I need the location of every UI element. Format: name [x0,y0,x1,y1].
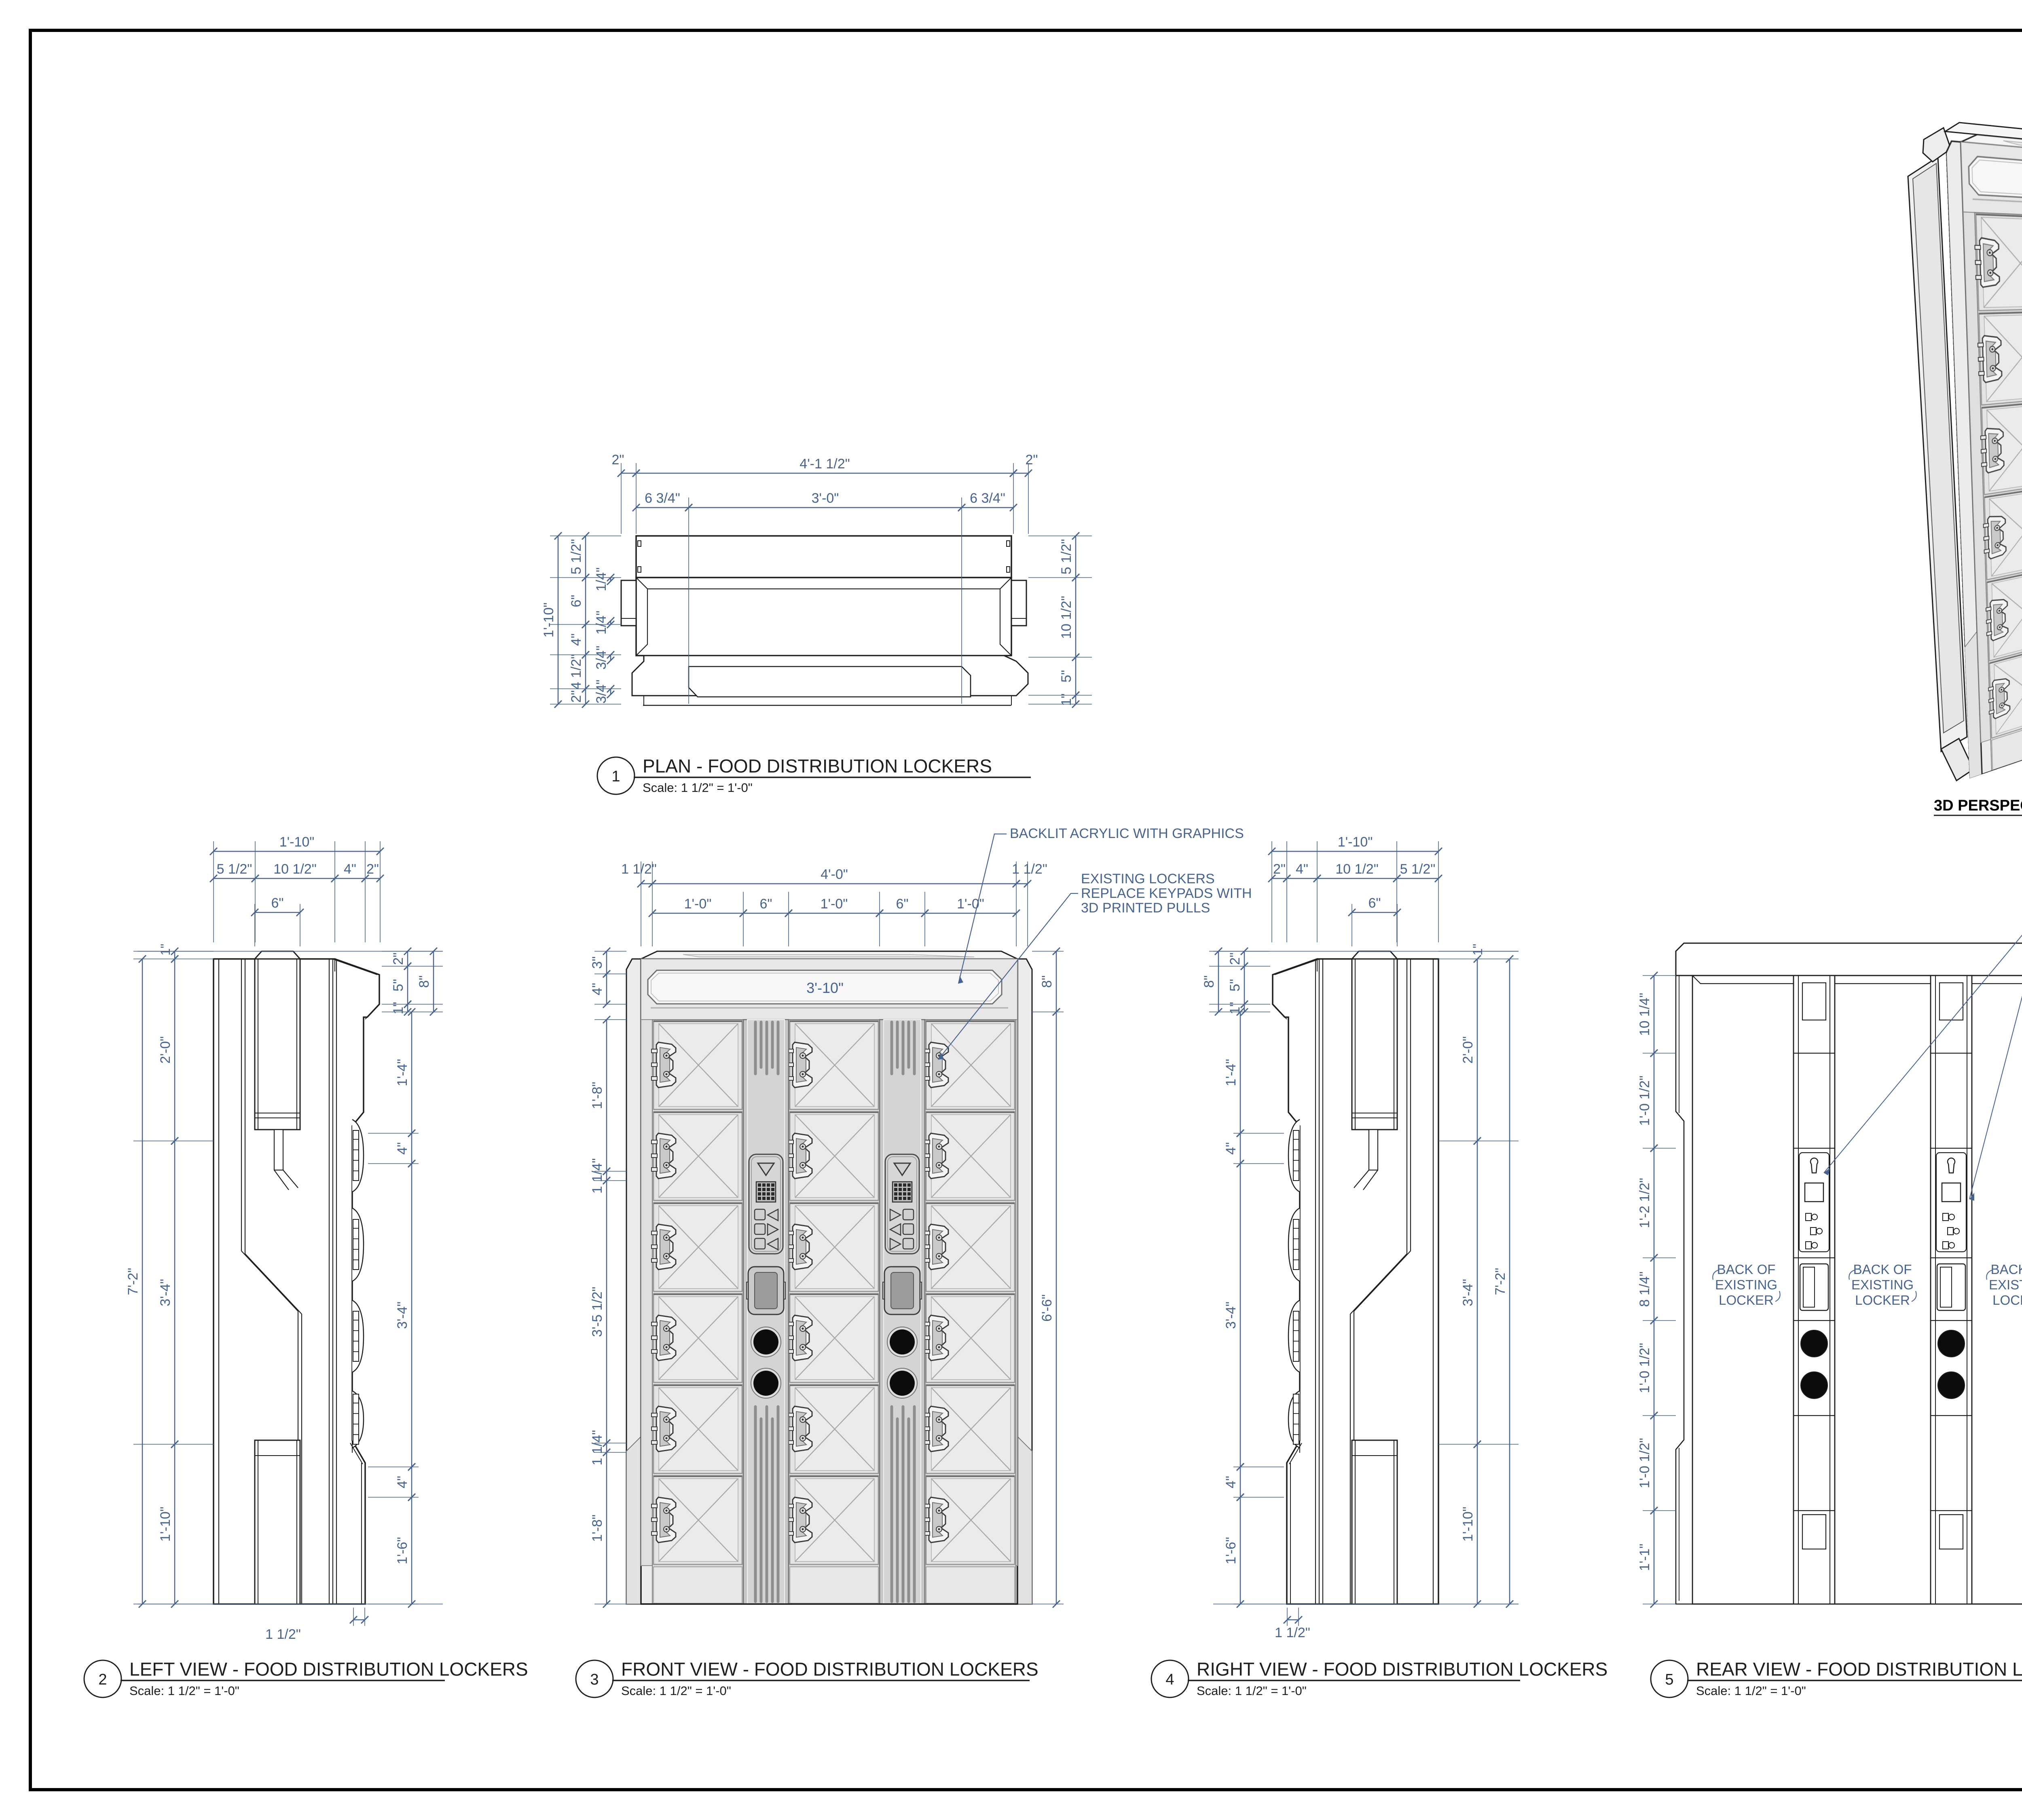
svg-text:4 1/2": 4 1/2" [569,654,584,690]
svg-text:3: 3 [590,1671,599,1688]
svg-text:3/4": 3/4" [594,645,609,669]
svg-text:3'-4": 3'-4" [158,1279,173,1306]
svg-text:1": 1" [391,1002,406,1014]
svg-text:3'-10": 3'-10" [806,980,844,996]
svg-text:1'-0 1/2": 1'-0 1/2" [1637,1343,1652,1393]
svg-text:1'-1": 1'-1" [1637,1544,1652,1571]
svg-text:1'-8": 1'-8" [590,1515,605,1542]
svg-text:1'-0": 1'-0" [821,896,848,912]
svg-text:1 1/2": 1 1/2" [1012,861,1047,877]
svg-text:1": 1" [1470,944,1485,955]
svg-text:Scale: 1 1/2" = 1'-0": Scale: 1 1/2" = 1'-0" [129,1684,239,1698]
svg-text:PLAN - FOOD DISTRIBUTION LOCKE: PLAN - FOOD DISTRIBUTION LOCKERS [643,756,992,777]
svg-text:4": 4" [569,633,584,646]
svg-text:6 3/4": 6 3/4" [645,491,680,506]
svg-text:1'-0": 1'-0" [957,896,984,912]
svg-text:10 1/2": 10 1/2" [1059,596,1074,639]
svg-text:1'-4": 1'-4" [1223,1059,1239,1086]
svg-text:Scale: 1 1/2" = 1'-0": Scale: 1 1/2" = 1'-0" [1197,1684,1307,1698]
svg-text:4": 4" [395,1142,410,1155]
svg-text:2": 2" [569,690,584,703]
svg-text:REPLACE KEYPADS WITH: REPLACE KEYPADS WITH [1081,886,1252,901]
svg-text:3D PERSPECTIVE VIEWS - N.T.S.: 3D PERSPECTIVE VIEWS - N.T.S. [1934,797,2022,814]
svg-text:3D PRINTED PULLS: 3D PRINTED PULLS [1081,900,1210,916]
svg-text:6": 6" [271,895,284,911]
svg-text:6": 6" [896,896,909,912]
svg-text:2": 2" [391,952,406,965]
svg-text:3'-0": 3'-0" [812,491,839,506]
svg-text:4": 4" [1223,1476,1239,1488]
svg-text:6'-6": 6'-6" [1039,1294,1055,1322]
svg-text:4": 4" [590,983,605,995]
svg-text:5: 5 [1665,1671,1673,1688]
svg-text:8": 8" [1201,976,1217,988]
svg-text:Scale: 1 1/2" = 1'-0": Scale: 1 1/2" = 1'-0" [621,1684,731,1698]
svg-text:1'-4": 1'-4" [395,1059,410,1086]
svg-text:1'-0": 1'-0" [684,896,712,912]
svg-text:1'-10": 1'-10" [1338,834,1373,850]
svg-text:1 1/2": 1 1/2" [265,1627,301,1642]
svg-text:3'-4": 3'-4" [1460,1279,1476,1306]
svg-text:2: 2 [98,1671,107,1688]
svg-text:1'-2 1/2": 1'-2 1/2" [1637,1178,1652,1228]
svg-text:4'-0": 4'-0" [821,867,848,882]
svg-text:1'-10": 1'-10" [279,834,315,850]
svg-text:EXISTING: EXISTING [1989,1277,2022,1292]
svg-text:5": 5" [1059,670,1074,683]
svg-text:4: 4 [1165,1671,1174,1688]
svg-text:2": 2" [1026,452,1038,468]
svg-text:LOCKER: LOCKER [1855,1293,1910,1308]
svg-text:1 1/2": 1 1/2" [621,861,657,877]
svg-text:3": 3" [590,957,605,969]
svg-text:4'-1 1/2": 4'-1 1/2" [799,456,850,472]
svg-text:1'-6": 1'-6" [1223,1537,1239,1564]
svg-text:8 1/4": 8 1/4" [1637,1272,1652,1307]
svg-text:Scale: 1 1/2" = 1'-0": Scale: 1 1/2" = 1'-0" [1696,1684,1806,1698]
svg-text:FRONT VIEW - FOOD DISTRIBUTION: FRONT VIEW - FOOD DISTRIBUTION LOCKERS [621,1659,1038,1680]
svg-text:1 1/4": 1 1/4" [590,1430,605,1466]
svg-text:2": 2" [1227,952,1243,965]
svg-text:6": 6" [760,896,772,912]
svg-text:Scale: 1 1/2" = 1'-0": Scale: 1 1/2" = 1'-0" [643,781,753,795]
svg-text:1'-0 1/2": 1'-0 1/2" [1637,1438,1652,1488]
svg-text:1'-10": 1'-10" [541,603,556,638]
svg-text:RIGHT VIEW - FOOD DISTRIBUTION: RIGHT VIEW - FOOD DISTRIBUTION LOCKERS [1197,1659,1607,1680]
svg-text:2'-0": 2'-0" [158,1036,173,1064]
svg-text:3/4": 3/4" [594,679,609,703]
svg-text:4": 4" [1296,861,1308,877]
svg-text:2": 2" [1273,861,1286,877]
svg-text:2": 2" [366,861,379,877]
svg-text:10 1/2": 10 1/2" [273,861,317,877]
svg-text:BACKLIT ACRYLIC WITH GRAPHICS: BACKLIT ACRYLIC WITH GRAPHICS [1010,826,1244,841]
svg-text:1'-0 1/2": 1'-0 1/2" [1637,1075,1652,1126]
svg-text:BACK OF: BACK OF [1717,1262,1776,1277]
svg-text:8": 8" [417,976,432,988]
svg-text:2": 2" [612,452,624,468]
svg-text:1 1/4": 1 1/4" [590,1158,605,1194]
svg-text:6": 6" [1368,895,1381,911]
svg-text:5 1/2": 5 1/2" [217,861,252,877]
svg-text:EXISTING: EXISTING [1851,1277,1914,1292]
svg-text:4": 4" [395,1476,410,1488]
svg-text:REAR VIEW - FOOD DISTRIBUTION: REAR VIEW - FOOD DISTRIBUTION LOCKERS [1696,1659,2022,1680]
svg-text:3'-4": 3'-4" [395,1302,410,1329]
svg-text:1": 1" [158,944,173,955]
svg-text:2'-0": 2'-0" [1460,1036,1476,1064]
svg-text:1'-6": 1'-6" [395,1537,410,1564]
svg-text:7'-2": 7'-2" [125,1268,141,1295]
svg-text:BACK OF: BACK OF [1853,1262,1912,1277]
svg-text:1/4": 1/4" [594,611,609,635]
svg-text:5": 5" [1227,979,1243,992]
svg-text:1": 1" [1059,694,1074,706]
svg-text:EXISTING: EXISTING [1715,1277,1777,1292]
svg-text:8": 8" [1039,976,1055,988]
svg-text:5 1/2": 5 1/2" [569,539,584,575]
svg-text:BACK OF: BACK OF [1991,1262,2022,1277]
svg-text:4": 4" [344,861,356,877]
svg-text:3'-5 1/2": 3'-5 1/2" [590,1287,605,1337]
svg-text:10 1/2": 10 1/2" [1335,861,1379,877]
svg-text:LEFT VIEW - FOOD DISTRIBUTION: LEFT VIEW - FOOD DISTRIBUTION LOCKERS [129,1659,528,1680]
svg-text:LOCKER: LOCKER [1719,1293,1774,1308]
svg-text:5": 5" [391,979,406,992]
svg-text:6 3/4": 6 3/4" [970,491,1005,506]
svg-text:1'-10": 1'-10" [1460,1507,1476,1542]
svg-text:EXISTING LOCKERS: EXISTING LOCKERS [1081,871,1215,887]
svg-text:5 1/2": 5 1/2" [1059,539,1074,575]
svg-text:6": 6" [569,595,584,607]
svg-text:7'-2": 7'-2" [1493,1268,1508,1295]
svg-text:1'-10": 1'-10" [158,1507,173,1542]
svg-text:1/4": 1/4" [594,567,609,591]
svg-text:LOCKER: LOCKER [1992,1293,2022,1308]
svg-text:1 1/2": 1 1/2" [1275,1625,1310,1640]
svg-text:1: 1 [611,768,620,785]
svg-text:1'-8": 1'-8" [590,1082,605,1109]
svg-text:5 1/2": 5 1/2" [1400,861,1436,877]
svg-text:10 1/4": 10 1/4" [1637,993,1652,1036]
svg-text:4": 4" [1223,1142,1239,1155]
svg-text:3'-4": 3'-4" [1223,1302,1239,1329]
